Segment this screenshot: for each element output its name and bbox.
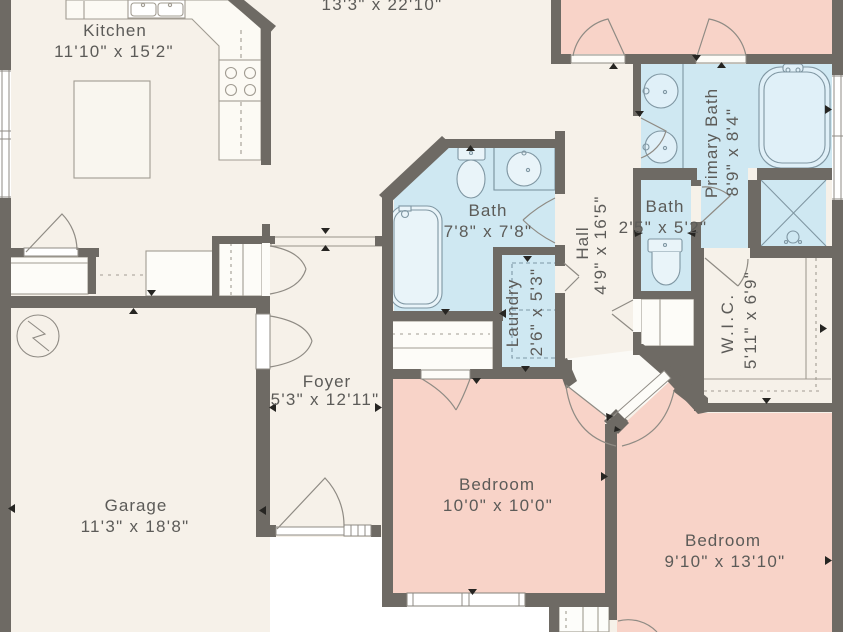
svg-text:10'0" x 10'0": 10'0" x 10'0" — [443, 496, 553, 515]
svg-text:2'6" x 5'3": 2'6" x 5'3" — [527, 268, 546, 357]
svg-text:4'9" x 16'5": 4'9" x 16'5" — [591, 195, 610, 294]
svg-text:9'10" x 13'10": 9'10" x 13'10" — [665, 552, 786, 571]
svg-text:8'9" x 8'4": 8'9" x 8'4" — [723, 108, 742, 197]
svg-text:Bath: Bath — [646, 197, 685, 216]
svg-text:Hall: Hall — [573, 226, 592, 259]
svg-text:Primary Bath: Primary Bath — [702, 88, 721, 198]
svg-text:Bedroom: Bedroom — [685, 531, 761, 550]
svg-text:11'3" x 18'8": 11'3" x 18'8" — [81, 517, 190, 536]
svg-text:2'5" x 5'2": 2'5" x 5'2" — [619, 218, 708, 237]
svg-text:Foyer: Foyer — [303, 372, 351, 391]
svg-text:Laundry: Laundry — [503, 279, 522, 347]
svg-text:5'11" x 6'9": 5'11" x 6'9" — [741, 271, 760, 369]
svg-text:Kitchen: Kitchen — [83, 21, 147, 40]
svg-text:13'3" x 22'10": 13'3" x 22'10" — [322, 0, 443, 14]
svg-text:Bath: Bath — [469, 201, 508, 220]
svg-text:5'3" x 12'11": 5'3" x 12'11" — [271, 390, 380, 409]
svg-text:W.I.C.: W.I.C. — [718, 292, 737, 353]
svg-text:Garage: Garage — [105, 496, 168, 515]
svg-text:Bedroom: Bedroom — [459, 475, 535, 494]
svg-text:7'8" x 7'8": 7'8" x 7'8" — [444, 222, 533, 241]
svg-text:11'10" x 15'2": 11'10" x 15'2" — [54, 42, 174, 61]
